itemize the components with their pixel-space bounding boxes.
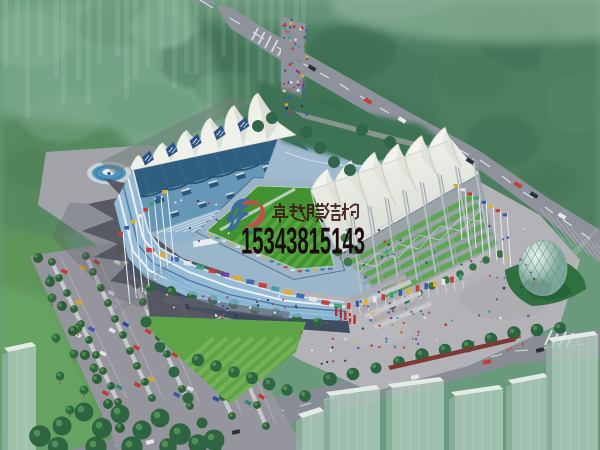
- svg-text:15343815143: 15343815143: [241, 220, 365, 262]
